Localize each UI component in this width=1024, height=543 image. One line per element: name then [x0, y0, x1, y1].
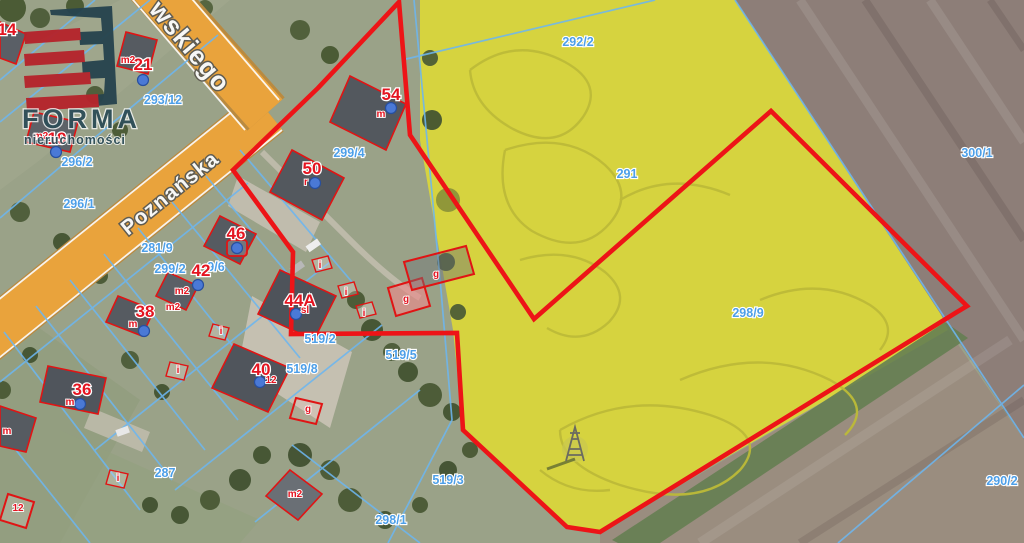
- building-marker-label: sl: [301, 305, 310, 316]
- building-marker-label: m2: [175, 286, 190, 297]
- parcel-number-label: 299/4: [333, 146, 364, 160]
- building-marker-label: i: [319, 260, 322, 271]
- building-marker-label: g: [305, 404, 311, 415]
- building-marker-label: g: [433, 269, 439, 280]
- parcel-number-label: 287: [155, 466, 176, 480]
- parcel-number-label: 292/2: [562, 35, 593, 49]
- house-number-label: 50: [303, 159, 322, 178]
- building-marker-label: m: [66, 397, 75, 408]
- house-number-label: 46: [227, 224, 246, 243]
- building-marker-label: m: [377, 109, 386, 120]
- parcel-number-label: 298/9: [732, 306, 763, 320]
- parcel-number-label: 296/2: [61, 155, 92, 169]
- address-point-dot: [310, 178, 321, 189]
- building-marker-label: i: [345, 287, 348, 298]
- parcel-number-label: 293/12: [144, 93, 182, 107]
- logo-text-nieruchomosci: nieruchomości: [24, 133, 126, 147]
- address-point-dot: [232, 243, 243, 254]
- parcel-number-label: 290/2: [986, 474, 1017, 488]
- building-marker-label: i: [177, 365, 180, 376]
- house-number-label: 38: [136, 302, 155, 321]
- building-marker-label: 12: [12, 503, 24, 514]
- address-point-dot: [138, 75, 149, 86]
- building-marker-label: m2: [166, 302, 181, 313]
- parcel-number-label: 519/2: [304, 332, 335, 346]
- parcel-number-label: 291: [617, 167, 638, 181]
- building-marker-label: m2: [288, 489, 303, 500]
- building-marker-label: i: [117, 473, 120, 484]
- parcel-number-label: 299/2: [154, 262, 185, 276]
- house-number-label: 42: [192, 261, 211, 280]
- building-marker-label: m: [129, 319, 138, 330]
- building-marker-label: 12: [265, 375, 277, 386]
- address-point-dot: [51, 147, 62, 158]
- building-marker-label: m2: [121, 55, 136, 66]
- address-point-dot: [386, 103, 397, 114]
- house-number-label: 21: [134, 55, 153, 74]
- house-number-label: 54: [382, 85, 401, 104]
- parcel-number-label: 296/1: [63, 197, 94, 211]
- building-marker-label: g: [403, 294, 409, 305]
- building-marker-label: i: [220, 326, 223, 337]
- parcel-number-label: 298/1: [375, 513, 406, 527]
- building-marker-label: r: [304, 177, 308, 188]
- address-point-dot: [75, 399, 86, 410]
- parcel-number-label: 519/5: [385, 348, 416, 362]
- parcel-number-label: 519/8: [286, 362, 317, 376]
- map-image: 293/12296/2296/1281/9299/29/6299/4292/22…: [0, 0, 1024, 543]
- address-point-dot: [139, 326, 150, 337]
- house-number-label: 14: [0, 20, 17, 39]
- logo-text-forma: FORMA: [22, 104, 141, 134]
- building-marker-label: m: [3, 426, 12, 437]
- house-number-label: 36: [73, 380, 92, 399]
- parcel-number-label: 281/9: [141, 241, 172, 255]
- address-point-dot: [193, 280, 204, 291]
- map-canvas: 293/12296/2296/1281/9299/29/6299/4292/22…: [0, 0, 1024, 543]
- parcel-number-label: 519/3: [432, 473, 463, 487]
- building-marker-label: i: [363, 308, 366, 319]
- parcel-number-label: 300/1: [961, 146, 992, 160]
